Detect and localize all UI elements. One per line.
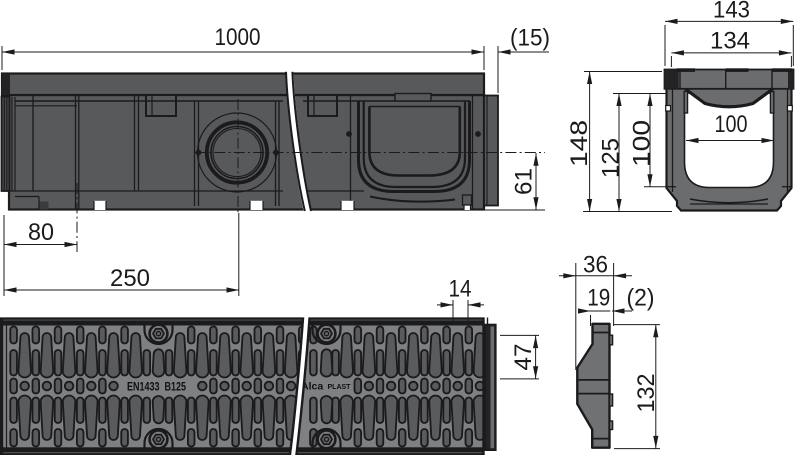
- svg-text:125: 125: [598, 138, 625, 178]
- svg-text:EN1433 B125: EN1433 B125: [127, 382, 186, 394]
- svg-text:14: 14: [449, 276, 472, 303]
- svg-text:1000: 1000: [215, 24, 261, 51]
- svg-text:132: 132: [633, 374, 660, 413]
- svg-text:134: 134: [710, 28, 750, 55]
- svg-text:47: 47: [510, 344, 537, 371]
- svg-text:100: 100: [715, 111, 748, 138]
- svg-text:PLAST: PLAST: [328, 384, 352, 391]
- svg-text:148: 148: [566, 120, 593, 167]
- svg-text:143: 143: [713, 0, 750, 24]
- svg-text:36: 36: [583, 252, 608, 279]
- svg-text:80: 80: [28, 219, 54, 246]
- svg-text:250: 250: [110, 265, 150, 292]
- svg-text:(15): (15): [510, 25, 550, 52]
- svg-text:61: 61: [511, 168, 538, 195]
- svg-text:100: 100: [629, 120, 656, 167]
- svg-text:19: 19: [587, 285, 610, 312]
- svg-text:(2): (2): [627, 285, 655, 312]
